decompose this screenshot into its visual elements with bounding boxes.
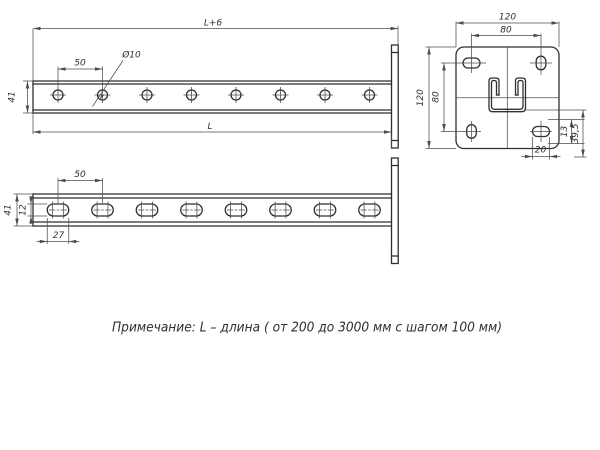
dim-plate-13: 13: [560, 126, 570, 138]
plate-slot-top-right: [530, 34, 552, 76]
plate-slot-top-left: [441, 34, 486, 74]
dim-profile-height: 41: [4, 204, 14, 215]
dim-plate-hole-pitch-vertical: 80: [432, 91, 442, 103]
dim-slot-length: 27: [53, 231, 65, 241]
dim-plate-width: 120: [499, 13, 516, 23]
end-plate-face-view: 120 80 120 80 13 39,5 20: [416, 13, 587, 160]
dim-length: L: [207, 122, 212, 132]
dim-slot-pitch: 50: [74, 170, 86, 180]
plate-slot-bottom-right: [530, 121, 552, 142]
technical-drawing-page: L+6 50 Ø10 41 L: [0, 0, 600, 450]
dim-hole-diameter: Ø10: [121, 50, 141, 61]
dim-overall-length: L+6: [204, 19, 223, 29]
strut-face-view: L+6 50 Ø10 41 L: [8, 19, 399, 149]
dim-plate-39-5: 39,5: [571, 123, 581, 143]
note-text: Примечание: L – длина ( от 200 до 3000 м…: [112, 320, 502, 336]
dim-slot-width: 12: [19, 204, 29, 216]
dim-hole-pitch: 50: [74, 59, 86, 69]
strut-console-drawing: L+6 50 Ø10 41 L: [0, 0, 600, 450]
dim-plate-hole-pitch-horizontal: 80: [500, 26, 512, 36]
end-plate-side: [392, 158, 399, 264]
strut-slotted-view: 50 41 12 27: [4, 158, 399, 264]
dim-plate-height: 120: [416, 89, 426, 106]
end-plate-side: [392, 45, 399, 148]
dim-plate-slot-length: 20: [535, 146, 547, 156]
plate-slot-bottom-left: [441, 121, 481, 142]
dim-profile-height: 41: [8, 91, 18, 102]
